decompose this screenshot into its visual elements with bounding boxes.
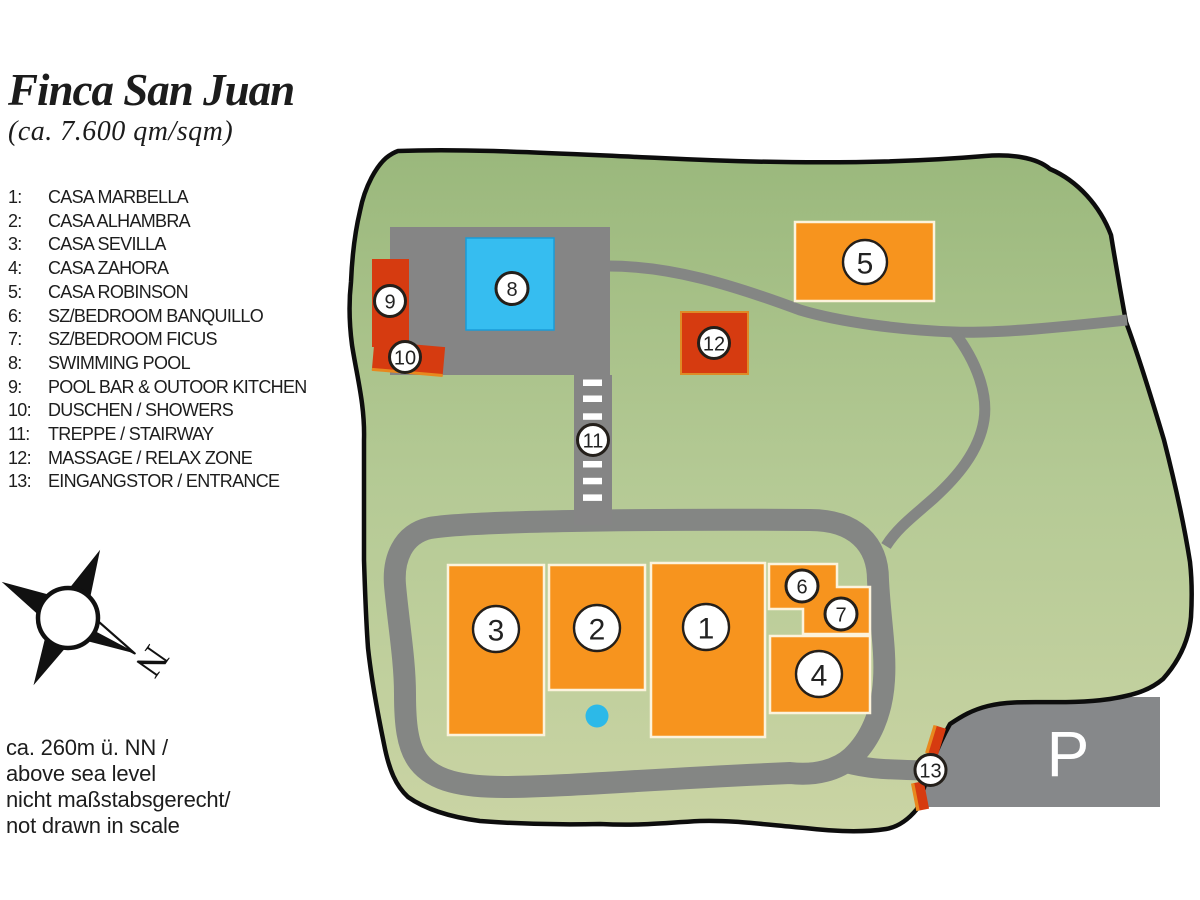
svg-text:4: 4 (811, 660, 828, 693)
svg-text:13: 13 (919, 761, 941, 783)
svg-text:N: N (127, 638, 177, 685)
svg-text:3: 3 (488, 615, 505, 648)
svg-text:5: 5 (857, 248, 874, 281)
svg-text:9: 9 (384, 292, 395, 314)
svg-text:11: 11 (583, 431, 604, 453)
svg-text:6: 6 (796, 577, 807, 599)
svg-text:12: 12 (703, 334, 725, 356)
svg-text:8: 8 (506, 279, 517, 301)
svg-text:10: 10 (394, 348, 416, 370)
svg-text:1: 1 (698, 613, 715, 646)
svg-text:2: 2 (589, 614, 606, 647)
svg-text:P: P (1047, 718, 1090, 790)
svg-text:7: 7 (835, 605, 846, 627)
